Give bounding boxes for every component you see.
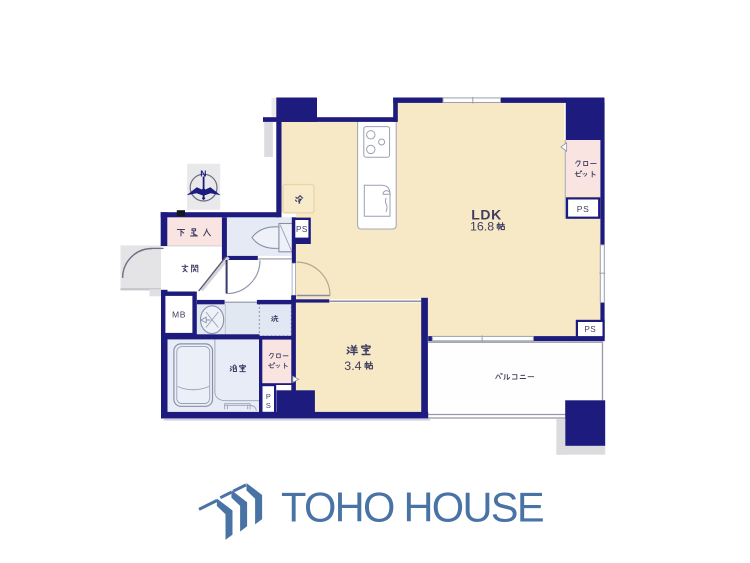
- svg-text:S: S: [266, 401, 271, 410]
- svg-text:3.4: 3.4: [344, 359, 361, 373]
- svg-text:TOHO HOUSE: TOHO HOUSE: [281, 484, 543, 531]
- svg-text:16.8: 16.8: [470, 220, 494, 234]
- svg-text:MB: MB: [172, 310, 186, 320]
- svg-text:PS: PS: [296, 225, 308, 234]
- svg-text:PS: PS: [584, 325, 596, 334]
- svg-text:P: P: [266, 392, 271, 401]
- svg-text:N: N: [200, 168, 206, 178]
- svg-text:PS: PS: [577, 204, 590, 214]
